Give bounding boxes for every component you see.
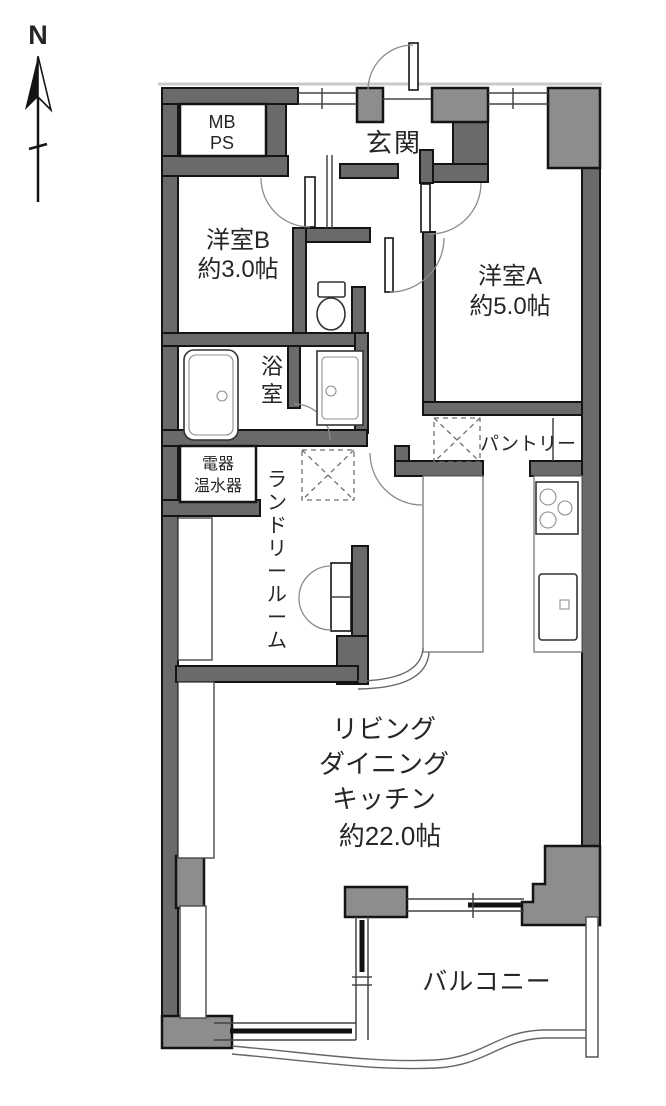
washbasin-icon	[317, 351, 363, 425]
ldk-label-2: ダイニング	[319, 749, 449, 779]
north-label: N	[28, 20, 48, 50]
meter-box-label: MB	[209, 112, 236, 132]
balcony-label: バルコニー	[422, 968, 552, 996]
north-arrow-icon: N	[25, 20, 51, 202]
room-b-name: 洋室B	[206, 227, 270, 254]
pillar-bottom-left	[162, 1016, 232, 1048]
bathtub-icon	[184, 350, 238, 440]
room-corridor-floor	[368, 150, 420, 476]
laundry-room-label: ランドリールーム	[267, 469, 287, 652]
entrance-right-stub	[432, 88, 488, 122]
entrance-left-stub	[357, 88, 383, 122]
pantry-label: パントリー	[480, 434, 576, 455]
pipe-space-label: PS	[210, 133, 234, 153]
water-heater-label-2: 温水器	[194, 477, 242, 495]
room-a-name: 洋室A	[478, 263, 542, 290]
floor-plan-page: N	[0, 0, 666, 1106]
water-heater-label-1: 電器	[202, 455, 234, 473]
pillar-living-left	[176, 856, 204, 908]
ldk-label-1: リビング	[332, 714, 436, 744]
room-b-size: 約3.0帖	[197, 256, 278, 283]
kitchen-counter	[534, 476, 582, 652]
sink-icon	[539, 574, 577, 640]
room-a-size: 約5.0帖	[469, 293, 550, 320]
balcony-right-wall	[586, 917, 598, 1057]
living-balcony-stub	[345, 887, 407, 917]
pillar-top-right	[548, 88, 600, 168]
entrance-label: 玄関	[366, 128, 422, 158]
ldk-size-label: 約22.0帖	[339, 821, 442, 851]
floor-plan: N	[0, 0, 666, 1106]
room-b-floor	[178, 176, 292, 333]
ldk-label-3: キッチン	[332, 784, 436, 814]
stove-icon	[536, 482, 578, 534]
toilet-icon	[317, 282, 345, 330]
